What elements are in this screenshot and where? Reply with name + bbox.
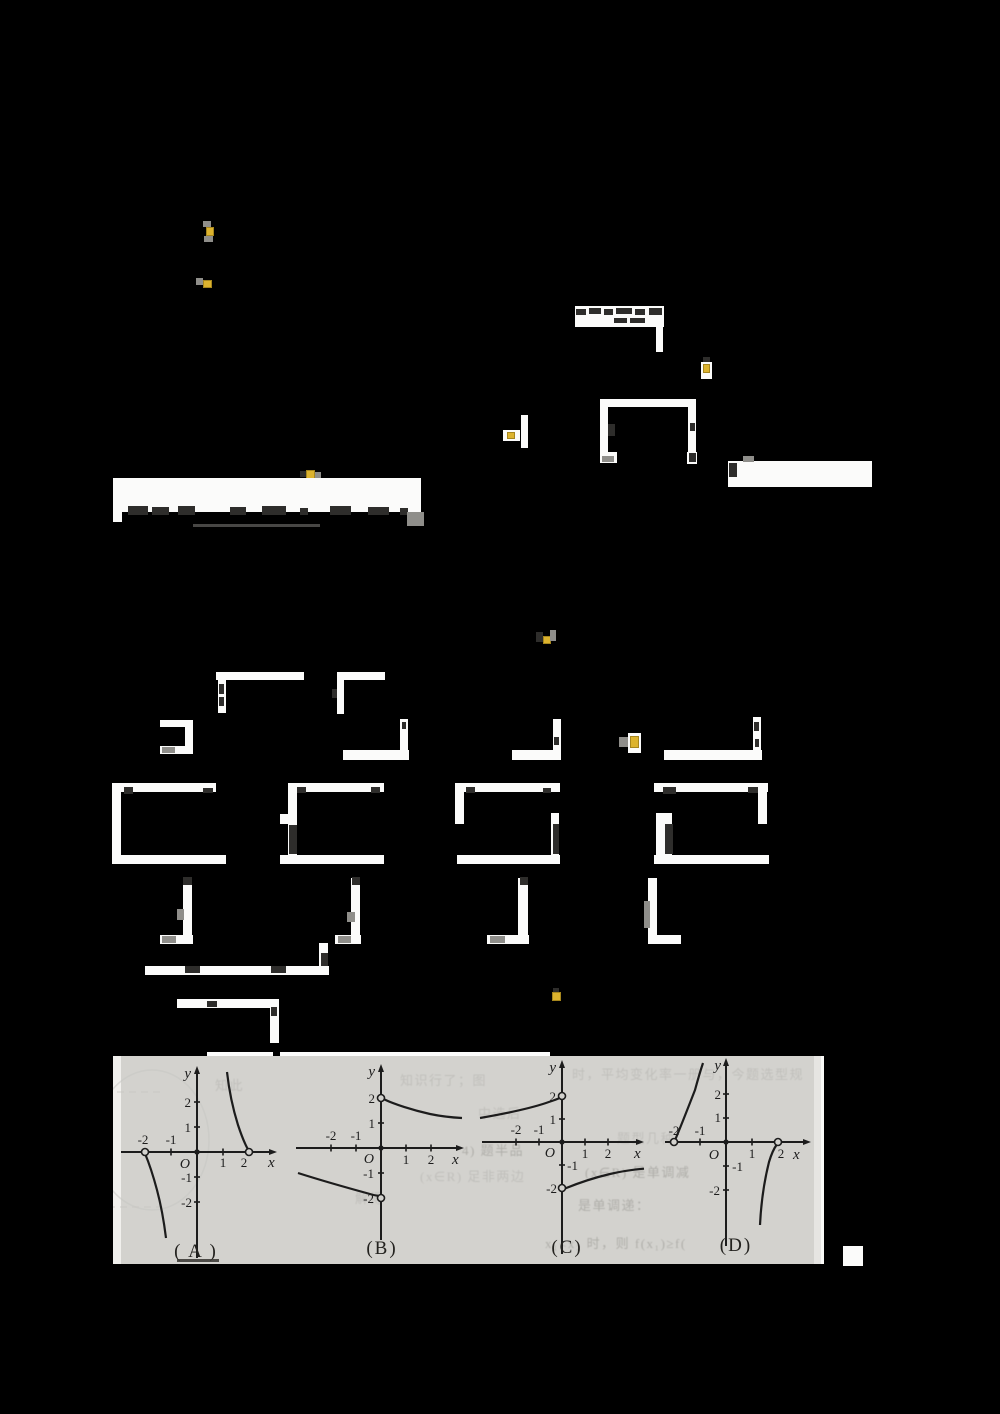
scan-gray-mark: [602, 456, 614, 462]
highlight-dot: [630, 736, 639, 748]
scan-white-fragment: [113, 478, 122, 522]
scan-white-fragment: [600, 399, 696, 407]
scan-white-fragment: [337, 672, 385, 680]
scan-white-fragment: [654, 855, 769, 864]
svg-text:1: 1: [749, 1146, 756, 1161]
scan-dark-mark: [589, 308, 601, 314]
scan-gray-mark: [490, 936, 505, 943]
scan-dark-mark: [689, 453, 696, 462]
scan-dark-mark: [262, 506, 286, 515]
svg-text:-1: -1: [567, 1158, 578, 1173]
scan-white-fragment: [177, 999, 279, 1008]
svg-text:-1: -1: [534, 1122, 545, 1137]
svg-text:-2: -2: [326, 1128, 337, 1143]
scan-dark-mark: [520, 877, 528, 885]
scan-dark-mark: [271, 1007, 277, 1016]
svg-text:y: y: [366, 1064, 375, 1080]
scan-dark-mark: [289, 825, 297, 854]
caption-underline-mark: [177, 1259, 219, 1262]
scan-dark-mark: [297, 787, 306, 793]
scanned-exam-page: 时，平均变化率一册与，今题选型规 知识行了；图 中选后 题型几种 4) 题半品 …: [0, 0, 1000, 1414]
scan-dark-mark: [352, 877, 360, 885]
svg-text:1: 1: [369, 1116, 376, 1131]
scan-white-fragment: [758, 783, 767, 824]
option-label-c: (C): [532, 1237, 602, 1259]
scan-gray-mark: [196, 278, 203, 285]
scan-dark-mark: [614, 318, 627, 323]
svg-text:-2: -2: [546, 1181, 557, 1196]
scan-dark-mark: [178, 506, 195, 515]
scan-white-fragment: [270, 999, 279, 1043]
scan-dark-mark: [183, 877, 192, 885]
scan-gray-mark: [644, 901, 650, 928]
svg-text:x: x: [267, 1155, 275, 1171]
option-label-b: (B): [347, 1238, 417, 1260]
svg-text:2: 2: [550, 1089, 557, 1104]
scan-white-fragment: [600, 407, 608, 457]
scan-gray-mark: [550, 630, 556, 641]
svg-text:O: O: [364, 1152, 374, 1167]
option-graph-a: y x O -2 -1 1 2 2 1 -1 -2: [115, 1062, 285, 1264]
scan-dark-mark: [690, 423, 695, 431]
highlight-dot: [703, 364, 710, 373]
scan-dark-mark: [729, 463, 737, 477]
svg-text:2: 2: [241, 1155, 248, 1170]
scan-gray-mark: [162, 747, 175, 753]
svg-text:x: x: [633, 1146, 641, 1162]
svg-text:-1: -1: [166, 1132, 177, 1147]
scan-gray-mark: [619, 737, 628, 747]
svg-text:1: 1: [715, 1110, 722, 1125]
scan-dark-mark: [576, 309, 586, 315]
scan-white-fragment: [455, 783, 464, 824]
svg-text:-2: -2: [511, 1122, 522, 1137]
scan-gray-mark: [743, 456, 754, 462]
scan-dark-mark: [332, 689, 337, 698]
scanned-graph-band: 时，平均变化率一册与，今题选型规 知识行了；图 中选后 题型几种 4) 题半品 …: [113, 1056, 824, 1264]
scan-dark-mark: [649, 308, 662, 315]
scan-gray-mark: [204, 236, 213, 242]
scan-white-fragment: [648, 935, 681, 944]
scan-dark-mark: [152, 507, 169, 515]
svg-text:1: 1: [185, 1120, 192, 1135]
scan-dark-mark: [665, 824, 673, 854]
scan-dark-mark: [368, 507, 389, 515]
scan-dark-mark: [207, 1001, 217, 1007]
svg-text:y: y: [712, 1058, 721, 1074]
scan-white-fragment: [216, 672, 304, 680]
scan-dark-mark: [608, 424, 615, 436]
svg-text:-1: -1: [181, 1170, 192, 1185]
scan-dark-mark: [185, 966, 200, 973]
scan-white-fragment: [183, 878, 192, 943]
scan-dark-mark: [554, 737, 559, 745]
scan-white-fragment: [337, 680, 344, 714]
highlight-dot: [203, 280, 212, 288]
svg-text:1: 1: [550, 1112, 557, 1127]
scan-white-fragment: [112, 783, 121, 864]
svg-text:-1: -1: [351, 1128, 362, 1143]
scan-dark-mark: [219, 697, 224, 706]
svg-text:-2: -2: [709, 1183, 720, 1198]
svg-text:2: 2: [605, 1146, 612, 1161]
scan-white-fragment: [351, 878, 360, 943]
scan-dark-mark: [203, 788, 213, 793]
scan-dark-mark: [755, 739, 759, 747]
svg-text:1: 1: [220, 1155, 227, 1170]
scan-white-fragment: [521, 415, 528, 448]
scan-dark-mark: [604, 309, 613, 315]
highlight-dot: [507, 432, 515, 439]
svg-text:2: 2: [715, 1087, 722, 1102]
svg-text:-2: -2: [363, 1191, 374, 1206]
scan-white-fragment: [728, 461, 872, 487]
scan-dark-mark: [553, 824, 559, 854]
scan-dark-mark: [635, 309, 645, 315]
svg-text:-1: -1: [695, 1123, 706, 1138]
scan-gray-mark: [347, 912, 355, 922]
svg-text:-1: -1: [363, 1166, 374, 1181]
scan-dark-mark: [616, 308, 632, 314]
scan-white-fragment: [112, 855, 226, 864]
scan-dark-mark: [663, 787, 676, 794]
scan-dark-mark: [124, 787, 133, 794]
highlight-dot: [206, 227, 214, 236]
scan-dark-mark: [271, 966, 286, 973]
scan-dark-mark: [128, 506, 148, 515]
scan-dark-mark: [754, 722, 759, 731]
svg-text:1: 1: [403, 1152, 410, 1167]
svg-text:x: x: [451, 1152, 459, 1168]
svg-text:y: y: [182, 1066, 191, 1082]
scan-dark-mark: [321, 953, 328, 966]
svg-text:O: O: [709, 1148, 719, 1163]
svg-text:-1: -1: [732, 1159, 743, 1174]
svg-text:2: 2: [428, 1152, 435, 1167]
scan-white-fragment: [656, 316, 663, 352]
svg-text:2: 2: [185, 1095, 192, 1110]
highlight-dot: [552, 992, 561, 1001]
scan-dark-mark: [330, 506, 351, 515]
scan-dark-mark: [230, 507, 246, 515]
scan-dark-mark: [371, 787, 380, 793]
scan-dark-mark: [536, 632, 543, 642]
scan-gray-mark: [338, 936, 351, 943]
scan-dark-mark: [466, 787, 475, 793]
scan-dark-mark: [219, 684, 224, 694]
option-graph-d: y x O -2 -1 1 2 2 1 -1 -2: [655, 1058, 830, 1262]
svg-text:1: 1: [582, 1146, 589, 1161]
option-graph-c: y x O -2 -1 1 2 2 1 -1 -2: [478, 1058, 650, 1262]
scan-gray-mark: [193, 524, 320, 527]
scan-white-fragment: [457, 855, 560, 864]
svg-text:x: x: [792, 1147, 800, 1163]
scan-dark-mark: [402, 722, 406, 729]
svg-text:-2: -2: [669, 1123, 680, 1138]
scan-white-fragment: [518, 878, 528, 943]
svg-text:2: 2: [369, 1091, 376, 1106]
scan-dark-mark: [300, 508, 308, 515]
scan-white-fragment: [145, 966, 329, 975]
scan-white-fragment: [664, 750, 762, 760]
svg-text:O: O: [545, 1146, 555, 1161]
svg-text:-2: -2: [138, 1132, 149, 1147]
scan-gray-mark: [162, 936, 176, 943]
scan-white-fragment: [280, 855, 384, 864]
svg-text:-2: -2: [181, 1195, 192, 1210]
svg-text:y: y: [547, 1060, 556, 1076]
scan-gray-mark: [177, 909, 184, 920]
scan-dark-mark: [630, 318, 645, 323]
svg-text:2: 2: [778, 1146, 785, 1161]
scan-dark-mark: [543, 788, 551, 793]
scan-white-fragment: [843, 1246, 863, 1266]
scan-gray-mark: [407, 512, 424, 526]
option-label-d: (D): [701, 1235, 771, 1257]
option-graph-b: y x O -2 -1 1 2 2 1 -1 -2: [290, 1062, 470, 1262]
scan-dark-mark: [748, 787, 758, 793]
